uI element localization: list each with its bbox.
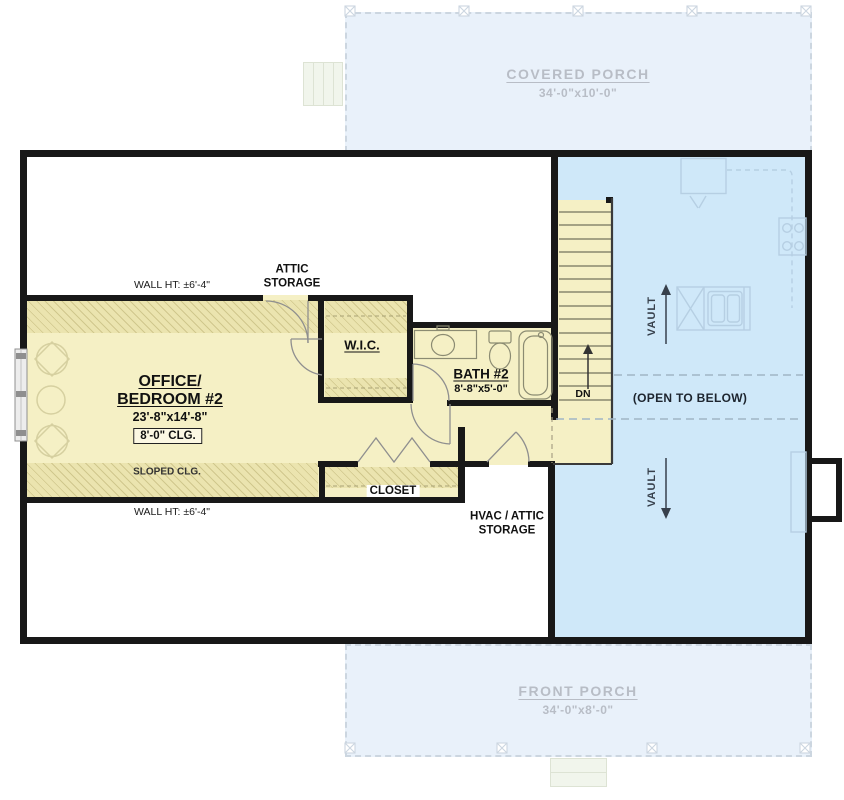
wall-height-note-bottom: WALL HT: ±6'-4" <box>134 506 210 518</box>
stairs-dn-label: DN <box>575 388 590 400</box>
wall <box>458 427 465 503</box>
fireplace-bump <box>806 458 842 522</box>
wall <box>318 295 324 403</box>
side-steps <box>303 62 343 106</box>
bath-label: BATH #2 <box>453 367 508 382</box>
front-porch-dims: 34'-0"x8'-0" <box>542 703 613 717</box>
wall-height-note-top: WALL HT: ±6'-4" <box>134 279 210 291</box>
front-steps <box>550 758 607 787</box>
attic-storage-label: ATTIC STORAGE <box>264 264 321 291</box>
bath-dims: 8'-8"x5'-0" <box>454 383 508 395</box>
covered-porch-dims: 34'-0"x10'-0" <box>539 86 617 100</box>
wic-shelf-top <box>325 301 407 333</box>
covered-porch-area <box>345 12 812 152</box>
wall <box>319 461 325 503</box>
wall <box>318 397 413 403</box>
floor-plan: COVERED PORCH 34'-0"x10'-0" FRONT PORCH … <box>0 0 844 800</box>
wall <box>20 497 465 503</box>
office-dims: 23'-8"x14'-8" <box>133 410 208 424</box>
stair-newel-post <box>606 197 613 203</box>
vault-label-top: VAULT <box>646 296 658 336</box>
wic-label: W.I.C. <box>344 338 379 353</box>
covered-porch-label: COVERED PORCH <box>506 66 649 82</box>
wall <box>447 400 558 406</box>
wall <box>465 461 489 467</box>
office-label-line2: BEDROOM #2 <box>117 391 223 409</box>
wall <box>551 157 558 420</box>
wall <box>20 295 263 301</box>
front-porch-area <box>345 644 812 757</box>
wall <box>548 465 555 637</box>
office-ceiling-tag: 8'-0" CLG. <box>133 426 202 444</box>
stairs-floor <box>558 200 612 465</box>
wall <box>407 322 558 328</box>
wall <box>407 295 413 403</box>
closet-label: CLOSET <box>367 485 420 497</box>
hall-floor <box>322 398 558 465</box>
vault-label-bottom: VAULT <box>646 467 658 507</box>
open-to-below-label: (OPEN TO BELOW) <box>633 391 747 405</box>
hvac-label: HVAC / ATTIC STORAGE <box>470 511 544 538</box>
wic-shelf-bottom <box>325 378 407 399</box>
sloped-ceiling-note: SLOPED CLG. <box>133 467 201 478</box>
office-label-line1: OFFICE/ <box>138 373 201 391</box>
sloped-ceiling-band-top <box>27 300 318 333</box>
front-porch-label: FRONT PORCH <box>518 683 637 699</box>
